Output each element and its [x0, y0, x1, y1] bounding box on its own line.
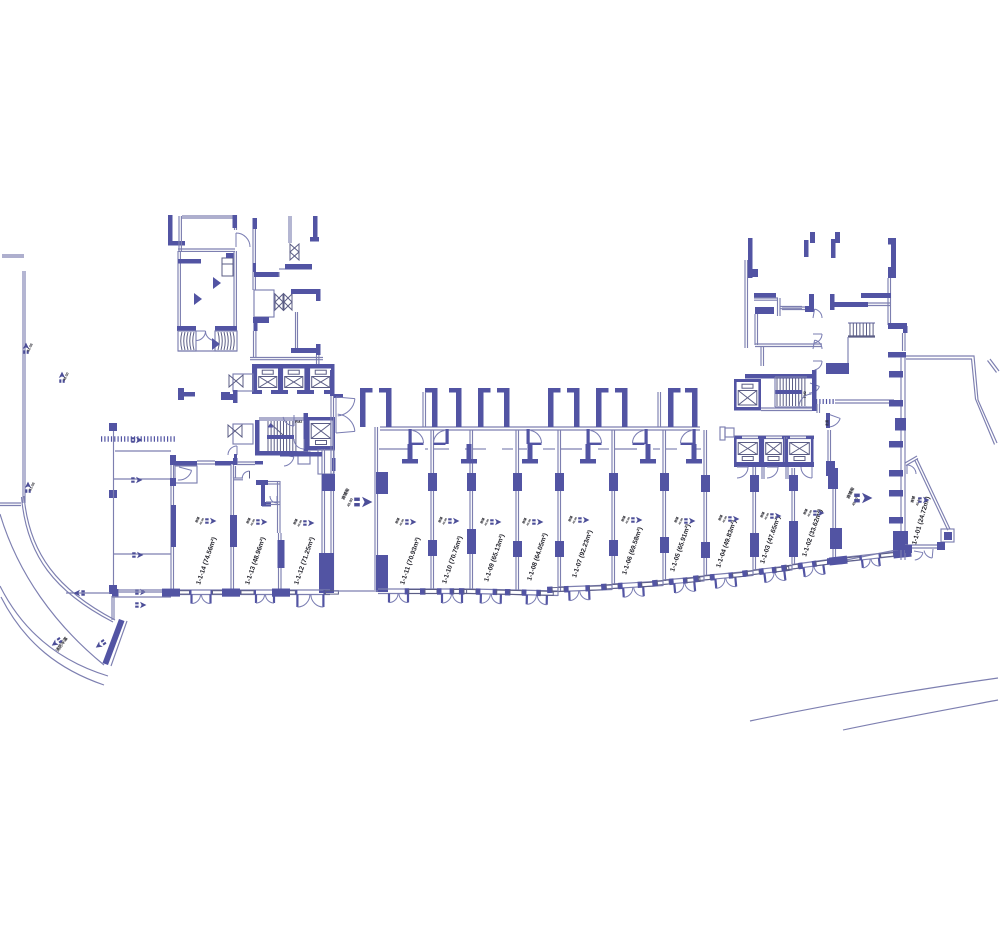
svg-text:FM2: FM2 [295, 420, 302, 424]
svg-text:走道: 走道 [824, 420, 829, 427]
